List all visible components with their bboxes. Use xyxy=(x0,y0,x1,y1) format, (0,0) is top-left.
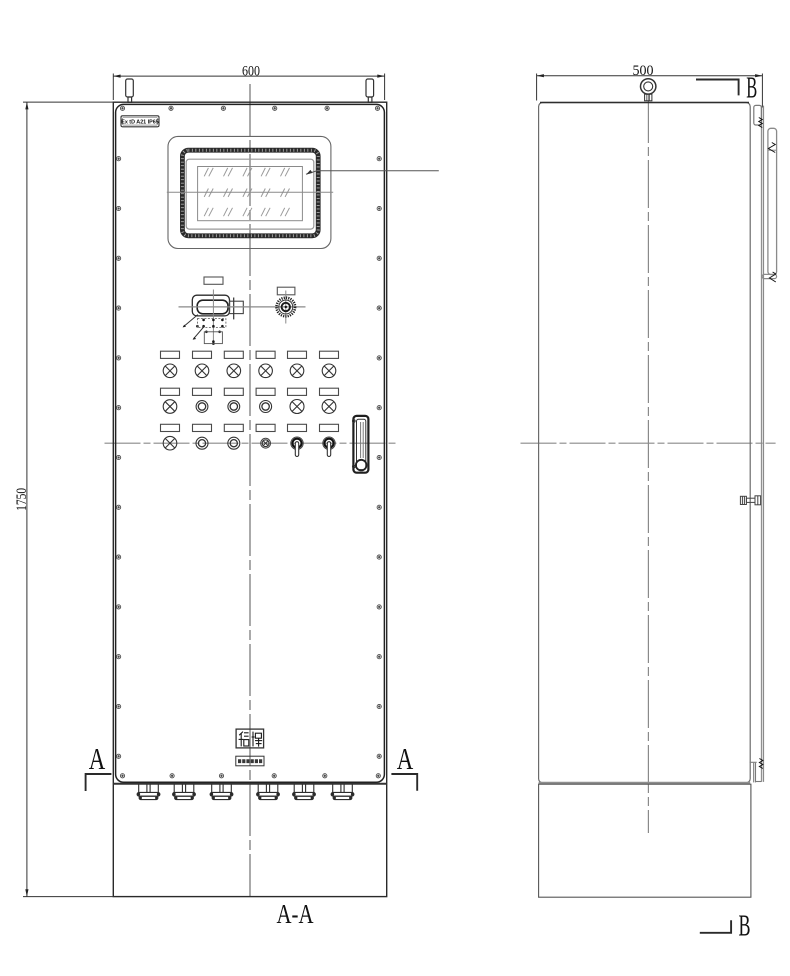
svg-text:B: B xyxy=(739,907,751,942)
svg-text:Ex tD A21 IP65: Ex tD A21 IP65 xyxy=(121,120,159,126)
svg-text:A: A xyxy=(397,741,414,776)
svg-text:A-A: A-A xyxy=(277,899,314,929)
svg-text:A: A xyxy=(89,741,106,776)
svg-text:1750: 1750 xyxy=(14,488,30,511)
svg-text:600: 600 xyxy=(242,64,260,80)
svg-text:B: B xyxy=(746,70,757,105)
svg-text:500: 500 xyxy=(633,63,654,79)
